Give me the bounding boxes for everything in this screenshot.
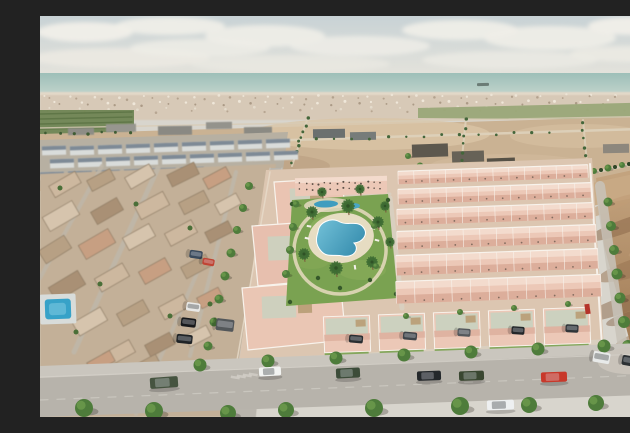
speck (226, 110, 228, 112)
palm-dot (297, 140, 300, 143)
palm-dot (315, 137, 318, 140)
speck (193, 96, 196, 99)
palm-dot (300, 136, 303, 139)
car (561, 324, 578, 334)
north-apartment-row (295, 176, 387, 196)
speck (185, 101, 187, 103)
speck (422, 99, 425, 102)
speck (177, 98, 179, 100)
palm-dot (114, 131, 117, 134)
speck (43, 95, 45, 97)
speck (607, 99, 609, 101)
speck (167, 95, 169, 97)
speck (155, 111, 158, 114)
palm-dot (297, 144, 300, 147)
car (507, 325, 524, 335)
speck (136, 108, 139, 111)
speck (94, 96, 97, 99)
speck (277, 103, 279, 105)
palm-dot (129, 131, 132, 134)
speck (548, 102, 550, 104)
townhouse-block (50, 159, 74, 169)
speck (371, 110, 373, 112)
car (416, 371, 443, 385)
car (258, 366, 283, 380)
speck (332, 96, 335, 99)
speck (396, 101, 398, 103)
speck (415, 94, 418, 97)
palm-dot (495, 134, 498, 137)
speck (536, 96, 539, 99)
palm-dot (86, 132, 89, 135)
dark-building (350, 132, 376, 140)
roof-terrace (298, 304, 312, 313)
speck (114, 104, 116, 106)
car (540, 372, 569, 387)
speck (126, 99, 129, 102)
speck (253, 106, 256, 109)
speck (224, 108, 227, 111)
bush (613, 165, 617, 169)
scene-root (40, 16, 630, 417)
speck (212, 102, 215, 105)
window (367, 181, 369, 183)
speck (335, 110, 337, 112)
speck (282, 107, 284, 109)
speck (562, 97, 564, 99)
speck (191, 110, 193, 112)
speck (107, 102, 110, 105)
townhouse-block (154, 143, 178, 153)
bush (368, 278, 372, 282)
scene-canvas (40, 16, 630, 417)
tree-dot (74, 330, 79, 335)
townhouse-block (126, 144, 150, 154)
window (312, 183, 314, 185)
bush (386, 198, 390, 202)
speck (439, 102, 441, 104)
palm-dot (458, 133, 461, 136)
speck (366, 96, 368, 98)
window (348, 188, 350, 190)
sea (40, 73, 630, 94)
townhouse-block (134, 156, 158, 166)
speck (53, 101, 55, 103)
speck (159, 101, 161, 103)
town-band (40, 92, 630, 95)
speck (412, 103, 414, 105)
palm-dot (100, 131, 103, 134)
speck (242, 95, 244, 97)
bush (338, 286, 342, 290)
palm-dot (387, 135, 390, 138)
speck (305, 98, 307, 100)
speck (357, 97, 359, 99)
speck (433, 96, 436, 99)
palm-dot (73, 132, 76, 135)
townhouse-block (246, 152, 270, 162)
speck (223, 104, 225, 106)
speck (399, 107, 401, 109)
speck (69, 95, 71, 97)
palm-dot (368, 138, 371, 141)
window (379, 188, 381, 190)
window (306, 183, 308, 185)
street-tree (521, 397, 542, 413)
speck (386, 103, 388, 105)
speck (589, 95, 591, 97)
lawn-patch (338, 260, 386, 280)
townhouse-block (106, 157, 130, 167)
window (342, 187, 344, 189)
speck (165, 107, 167, 109)
palm-dot (405, 136, 407, 138)
speck (118, 96, 121, 99)
bush (316, 276, 320, 280)
palm-dot (333, 138, 335, 140)
speck (151, 97, 153, 99)
car (485, 399, 515, 414)
townhouse-block (182, 142, 206, 152)
palm-dot (530, 131, 533, 134)
speck (48, 107, 50, 109)
cargo-ship (477, 83, 489, 86)
townhouse-block (78, 158, 102, 168)
speck (466, 96, 468, 98)
speck (495, 103, 497, 105)
dark-building (313, 129, 345, 139)
speck (75, 98, 77, 100)
speck (370, 101, 372, 103)
car (335, 367, 362, 382)
palm-dot (581, 129, 584, 132)
speck (527, 99, 530, 102)
speck (343, 100, 346, 103)
speck (167, 103, 169, 105)
speck (194, 107, 196, 109)
warehouse (158, 126, 192, 136)
window (299, 188, 301, 190)
townhouse-block (266, 139, 290, 149)
speck (342, 95, 344, 97)
speck (501, 101, 503, 103)
palm-dot (423, 136, 426, 139)
townhouse-block (42, 146, 66, 156)
speck (358, 102, 361, 105)
speck (280, 98, 282, 100)
speck (264, 101, 266, 103)
speck (330, 104, 332, 106)
ship (477, 83, 489, 86)
old-town-pool (40, 293, 77, 324)
speck (238, 100, 241, 103)
speck (511, 96, 513, 98)
speck (579, 101, 581, 103)
window (354, 182, 356, 184)
warehouse (106, 124, 136, 133)
speck (218, 94, 221, 97)
palm-dot (307, 116, 310, 119)
palm-dot (460, 159, 463, 162)
speck (553, 100, 556, 103)
speck (521, 103, 523, 105)
warehouse (206, 122, 232, 129)
palm-dot (461, 151, 464, 154)
palm-dot (582, 137, 585, 140)
palm-dot (583, 146, 586, 149)
speck (143, 95, 145, 97)
tree-dot (58, 186, 63, 191)
townhouse-block (70, 146, 94, 156)
speck (254, 97, 256, 99)
speck (575, 102, 578, 105)
window (379, 182, 381, 184)
car (453, 327, 470, 337)
window (337, 189, 339, 191)
street-tree (588, 395, 609, 411)
palm-dot (305, 125, 308, 128)
dark-building (603, 144, 629, 153)
palm-dot (465, 117, 468, 120)
car (148, 376, 180, 393)
palm-dot (584, 154, 587, 157)
speck (229, 96, 232, 99)
dark-building (412, 143, 448, 157)
palm-dot (290, 162, 293, 165)
townhouse-block (218, 153, 242, 163)
speck (194, 104, 196, 106)
speck (81, 101, 83, 103)
palm-dot (59, 132, 62, 135)
sea (40, 73, 630, 94)
speck (263, 111, 265, 113)
speck (614, 96, 616, 98)
speck (316, 102, 319, 105)
speck (383, 98, 385, 100)
speck (140, 105, 143, 108)
speck (441, 95, 443, 97)
tree-dot (134, 202, 139, 207)
window (329, 188, 331, 190)
window (299, 182, 301, 184)
speck (539, 95, 541, 97)
window (373, 187, 375, 189)
speck (79, 107, 81, 109)
speck (58, 103, 60, 105)
window (324, 182, 326, 184)
speck (515, 94, 518, 97)
backyard-pool (49, 303, 66, 316)
townhouse-block (210, 141, 234, 151)
tree-dot (208, 302, 213, 307)
aerial-development-render (40, 16, 630, 417)
speck (370, 106, 373, 109)
speck (249, 102, 252, 105)
bush (288, 300, 292, 304)
palm-dot (44, 132, 47, 135)
speck (132, 102, 135, 105)
palm-dot (462, 142, 465, 145)
speck (87, 104, 89, 106)
tree-dot (188, 226, 193, 231)
speck (391, 94, 394, 97)
window (367, 187, 369, 189)
window (337, 183, 339, 185)
speck (408, 96, 410, 98)
speck (299, 109, 302, 112)
townhouse-block (162, 155, 186, 165)
speck (290, 101, 292, 103)
tree-dot (98, 282, 103, 287)
warehouse (68, 128, 94, 135)
speck (406, 111, 408, 113)
speck (466, 102, 469, 105)
speck (460, 97, 462, 99)
car (458, 371, 486, 385)
speck (340, 108, 343, 111)
townhouse-block (274, 151, 298, 161)
speck (303, 103, 305, 105)
window (317, 184, 319, 186)
speck (475, 101, 477, 103)
townhouse-block (238, 140, 262, 150)
speck (48, 97, 50, 99)
speck (447, 100, 450, 103)
palm-dot (477, 134, 479, 136)
palm-dot (462, 135, 465, 138)
cloud (190, 55, 390, 73)
speck (317, 94, 320, 97)
speck (490, 94, 493, 97)
window (348, 182, 350, 184)
cloud (130, 39, 270, 57)
speck (291, 96, 294, 99)
cloud (290, 36, 430, 56)
speck (100, 98, 102, 100)
window (373, 181, 375, 183)
palm-dot (513, 131, 516, 134)
speck (203, 98, 205, 100)
dark-building (452, 150, 484, 162)
townhouse-block (98, 145, 122, 155)
speck (267, 95, 269, 97)
window (306, 189, 308, 191)
speck (486, 98, 488, 100)
bush (599, 168, 603, 172)
window (342, 181, 344, 183)
palm-dot (581, 121, 584, 124)
palm-dot (440, 133, 443, 136)
palm-dot (464, 127, 467, 130)
tree (618, 316, 630, 328)
palm-dot (350, 138, 353, 141)
window (312, 189, 314, 191)
tree-dot (168, 314, 173, 319)
palm-dot (548, 132, 550, 134)
palm-dot (301, 130, 304, 133)
speck (311, 107, 313, 109)
window (329, 182, 331, 184)
speck (565, 93, 567, 95)
